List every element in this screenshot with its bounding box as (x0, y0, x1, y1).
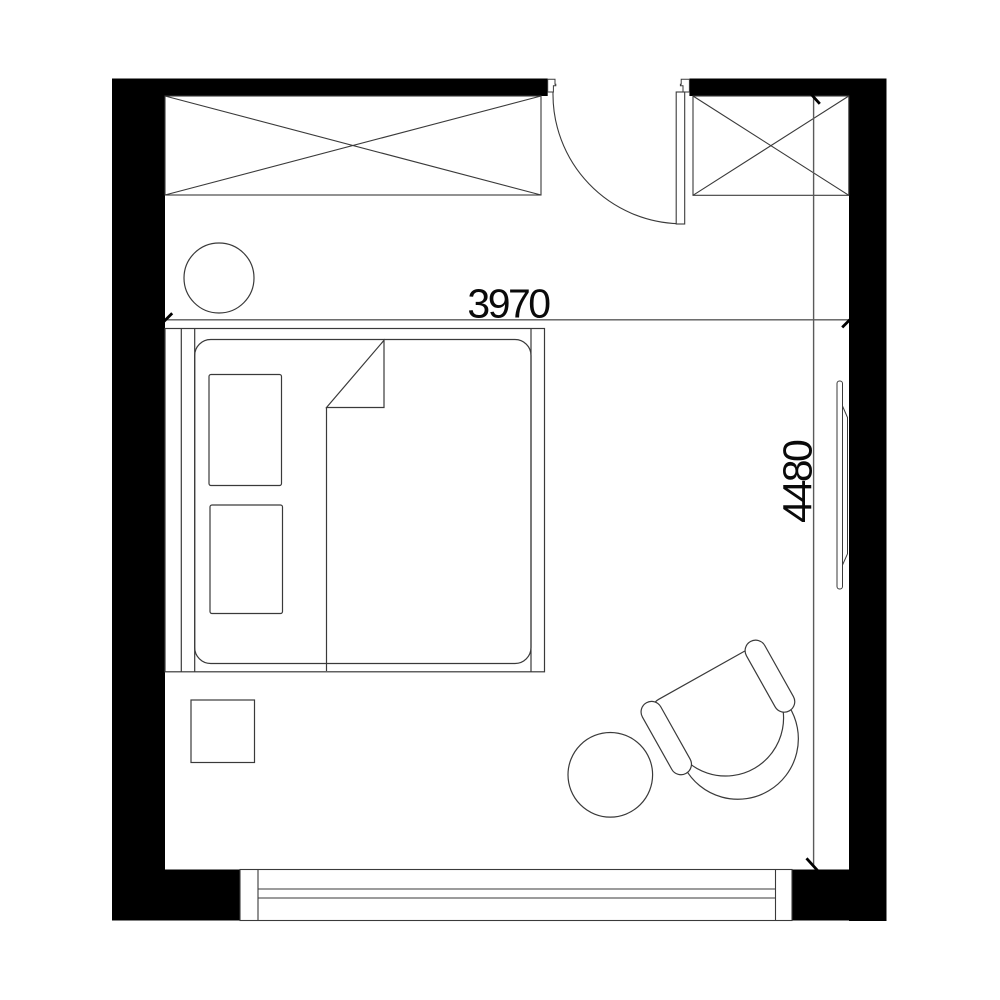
svg-text:3970: 3970 (467, 281, 550, 327)
svg-text:4480: 4480 (775, 440, 821, 523)
